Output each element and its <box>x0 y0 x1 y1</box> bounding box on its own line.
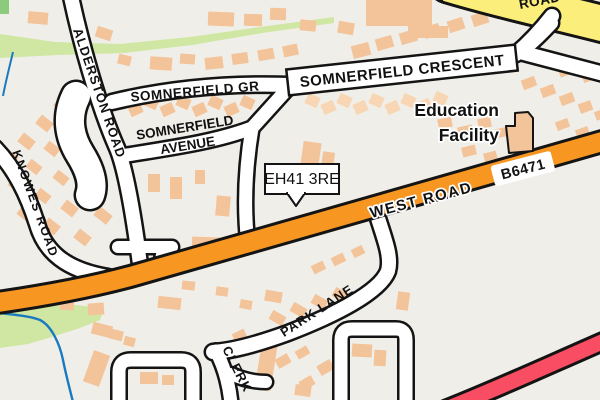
building <box>331 253 347 267</box>
building <box>257 48 275 62</box>
building <box>239 299 252 310</box>
education-facility-text-1: Education <box>414 100 499 120</box>
building <box>366 0 432 26</box>
building <box>95 26 114 41</box>
building <box>295 345 311 359</box>
map-canvas: SOMNERFIELD CRESCENT ALDERSTON ROAD SOMN… <box>0 0 600 400</box>
building <box>170 177 182 199</box>
building <box>375 35 395 51</box>
building <box>83 350 110 387</box>
building <box>239 95 255 110</box>
building <box>150 56 173 71</box>
postcode-callout-text: EH41 3RE <box>264 171 340 188</box>
building <box>351 245 366 258</box>
building <box>109 329 124 342</box>
building <box>399 29 419 45</box>
building <box>351 42 372 59</box>
building <box>159 102 175 117</box>
building <box>73 229 92 247</box>
building <box>555 118 570 131</box>
building <box>28 11 49 25</box>
building <box>208 12 234 27</box>
building <box>180 53 196 64</box>
building <box>578 100 594 114</box>
building <box>140 372 158 384</box>
education-facility-building <box>506 112 533 153</box>
building <box>244 14 262 27</box>
building <box>148 174 160 192</box>
building <box>182 280 196 290</box>
building <box>320 100 336 115</box>
building <box>215 195 231 216</box>
building <box>559 92 576 106</box>
building <box>117 54 132 67</box>
building <box>540 84 557 98</box>
building <box>264 290 283 304</box>
building <box>294 384 311 397</box>
building <box>447 17 466 33</box>
building <box>17 133 36 151</box>
stream-top-left <box>3 52 13 96</box>
building <box>215 286 228 297</box>
building <box>195 170 205 184</box>
building <box>191 102 207 117</box>
building <box>270 8 286 21</box>
building <box>594 108 600 121</box>
education-facility-text-2: Facility <box>439 125 500 145</box>
building <box>396 291 410 310</box>
building <box>337 21 355 36</box>
map-viewport[interactable]: SOMNERFIELD CRESCENT ALDERSTON ROAD SOMN… <box>0 0 600 400</box>
building <box>311 261 327 275</box>
building <box>88 302 105 315</box>
building <box>336 93 352 108</box>
building <box>368 93 384 108</box>
building <box>352 100 368 115</box>
building <box>162 375 174 385</box>
somnerfield-crescent-label: SOMNERFIELD CRESCENT <box>286 45 517 96</box>
building <box>384 100 400 115</box>
building <box>304 93 320 108</box>
building <box>299 19 316 32</box>
building <box>231 52 248 65</box>
building <box>374 350 387 367</box>
building <box>461 144 477 157</box>
building <box>52 170 69 186</box>
building <box>521 76 538 90</box>
green-square-corner <box>0 0 9 14</box>
building <box>204 56 223 70</box>
building <box>35 115 54 133</box>
building <box>123 336 136 347</box>
building <box>352 343 373 357</box>
postcode-callout: EH41 3RE <box>264 164 340 206</box>
building <box>316 359 334 376</box>
building <box>282 44 299 58</box>
building <box>274 353 291 369</box>
building <box>157 296 181 310</box>
